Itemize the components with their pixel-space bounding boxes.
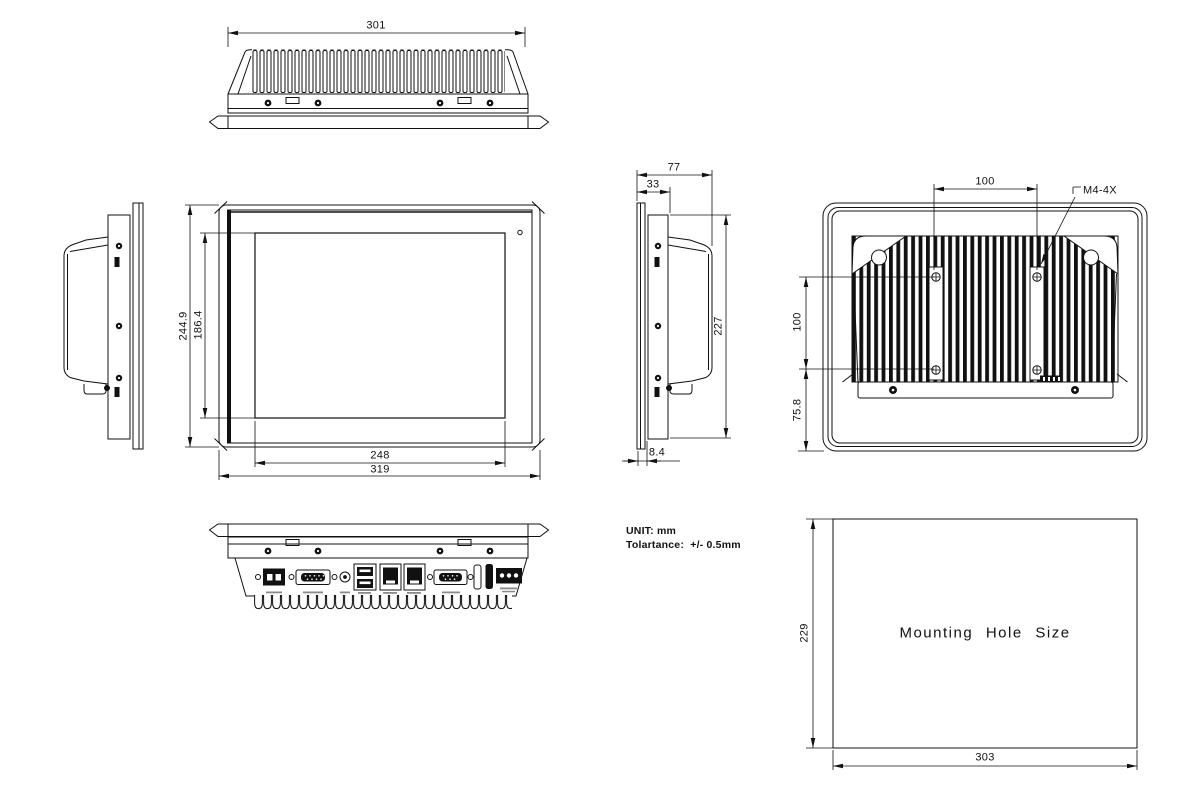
screw-icon <box>428 575 433 580</box>
rear-view <box>798 184 1147 451</box>
heatsink-fins-top <box>252 50 505 94</box>
com-port-db9-icon <box>296 570 330 585</box>
top-view <box>210 27 549 129</box>
dim-top-width: 301 <box>366 21 385 32</box>
dim-side-front-depth: 33 <box>647 180 660 191</box>
mounting-hole-title: Mounting Hole Size <box>899 625 1070 642</box>
display-area <box>255 233 505 418</box>
bottom-view <box>210 524 549 610</box>
dim-rear-vesa-height: 100 <box>793 312 804 331</box>
mounting-hole-view <box>806 519 1137 770</box>
dim-rear-vesa-width: 100 <box>975 177 994 188</box>
dim-front-screen-width: 248 <box>370 451 389 462</box>
dim-side-total-depth: 77 <box>668 163 681 174</box>
technical-drawing-canvas: .ln{fill:none;stroke:#111;stroke-width:1… <box>0 0 1200 800</box>
heatsink-profile <box>668 237 712 384</box>
slot-icon <box>486 564 494 589</box>
screw-icon <box>289 575 294 580</box>
slot-icon <box>474 565 481 589</box>
com-port-db9-icon <box>434 570 467 585</box>
unit-note: UNIT: mm <box>626 526 676 537</box>
heatsink-fins-bottom <box>254 595 512 610</box>
front-bezel-edge-bottom <box>210 524 549 537</box>
dim-side-body-height: 227 <box>714 316 725 335</box>
dim-front-screen-height: 186.4 <box>194 310 205 339</box>
front-view <box>185 202 545 481</box>
power-terminal-3pin-icon <box>496 568 522 584</box>
corner-hole <box>1084 250 1099 265</box>
screw-icon <box>468 575 473 580</box>
front-bezel <box>219 205 540 447</box>
dim-mount-width: 303 <box>975 753 994 764</box>
heatsink-fins-rear <box>852 236 1118 382</box>
dim-mount-height: 229 <box>800 623 811 642</box>
bottom-screws <box>265 540 494 555</box>
screw-icon <box>256 575 261 580</box>
heatsink-profile <box>64 237 108 384</box>
dc-jack-icon <box>340 572 350 582</box>
power-led <box>518 230 522 234</box>
vesa-slot <box>1030 267 1044 380</box>
usb-dual-port-icon <box>354 564 376 590</box>
bezel-profile <box>133 203 143 449</box>
dim-front-outer-height: 244.9 <box>179 311 190 340</box>
power-terminal-2pin-icon <box>263 569 285 586</box>
dim-front-outer-width: 319 <box>370 465 389 476</box>
vesa-slot <box>929 267 943 380</box>
lan-port-icon <box>404 564 425 590</box>
side-view-left <box>64 203 143 449</box>
dim-side-bezel-depth: 8.4 <box>649 448 665 459</box>
thread-callout-label: M4-4X <box>1083 186 1117 197</box>
front-bezel-edge-top <box>210 116 549 129</box>
corner-hole <box>872 250 887 265</box>
screw-icon <box>332 575 337 580</box>
top-screws <box>265 98 494 107</box>
dim-rear-bottom-offset: 75.8 <box>793 399 804 422</box>
tolerance-note: Tolartance: +/- 0.5mm <box>626 540 741 551</box>
lan-port-icon <box>380 564 401 590</box>
io-ports <box>256 564 523 594</box>
drawing-linework: .ln{fill:none;stroke:#111;stroke-width:1… <box>0 0 1200 800</box>
